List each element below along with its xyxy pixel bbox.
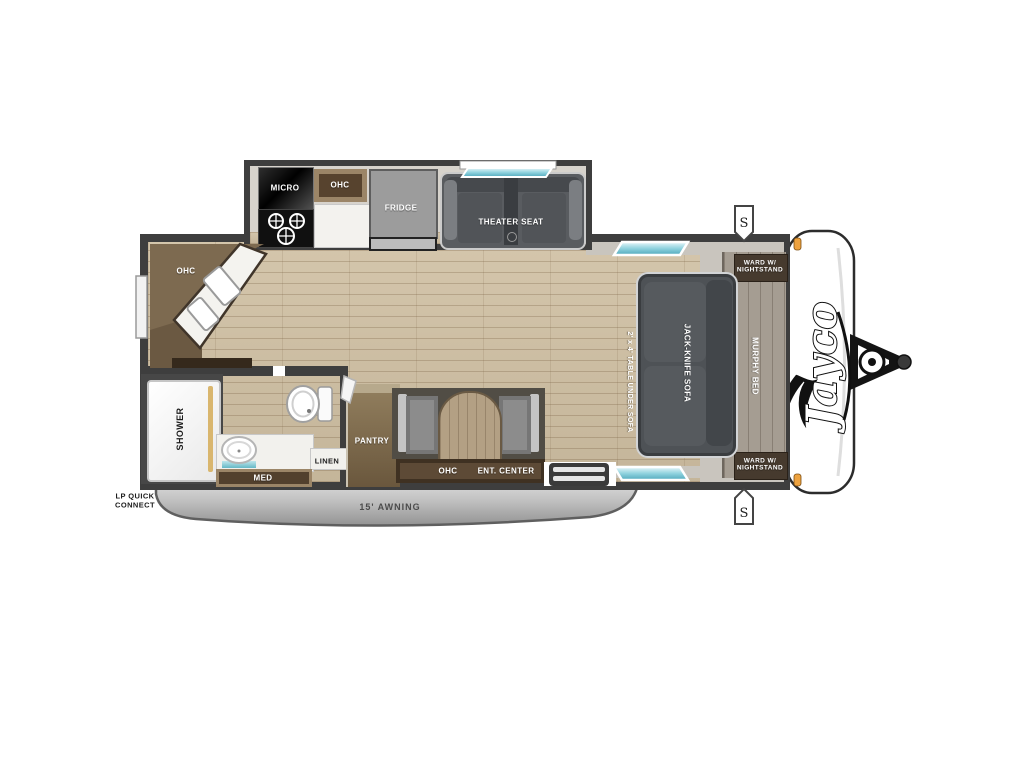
svg-text:S: S [740,216,749,231]
table [438,391,502,459]
front-cap [786,231,854,493]
dinette-seat-left [406,396,438,454]
fridge-step [369,237,437,251]
vanity-accent [222,461,256,468]
table-note-label: 2' x 4' TABLE UNDER SOFA [625,331,633,432]
bath-door-opening [273,366,285,376]
cupholder-icon [507,232,517,242]
hitch [850,334,911,390]
theater-seat [440,172,586,250]
shower-door [208,386,213,472]
dinette-surround [392,388,545,459]
murphy-bed-label: MURPHY BED [750,337,759,395]
ent-center-label: ENT. CENTER [478,466,535,475]
fridge-label: FRIDGE [385,203,418,212]
entry-steps [549,463,609,486]
corner-ohc-label: OHC [177,266,196,275]
ohc-kitchen-label: OHC [331,180,350,189]
bath-wall-right [285,366,348,376]
theater-seat-label: THEATER SEAT [479,217,544,226]
sofa-label: JACK-KNIFE SOFA [682,324,691,402]
front-cap-contour [838,248,845,476]
speaker-bottom-icon: S [735,489,753,524]
shower-label: SHOWER [175,408,185,451]
marker-light-top [794,238,801,250]
ward-bottom-label: WARD W/ NIGHTSTAND [734,458,786,473]
svg-text:S: S [740,506,749,521]
linen-label: LINEN [315,458,340,467]
marker-light-bottom [794,474,801,486]
pantry-label: PANTRY [355,436,389,445]
floorplan-canvas: Jayco [0,0,1024,768]
micro-label: MICRO [271,183,300,192]
kitchen-counter [314,204,371,248]
stove [258,209,314,248]
svg-text:Jayco: Jayco [797,301,846,433]
awning-label: 15' AWNING [359,502,420,512]
logo-underline [838,312,850,420]
ward-top-label: WARD W/ NIGHTSTAND [734,260,786,275]
med-label: MED [254,473,273,482]
dinette-seat-right [499,396,531,454]
lp-quick-connect-label: LP QUICK CONNECT [109,492,161,509]
ohc-ent-label: OHC [439,466,458,475]
coupler-ball-icon [897,355,911,369]
jack-wheel-icon [860,350,884,374]
